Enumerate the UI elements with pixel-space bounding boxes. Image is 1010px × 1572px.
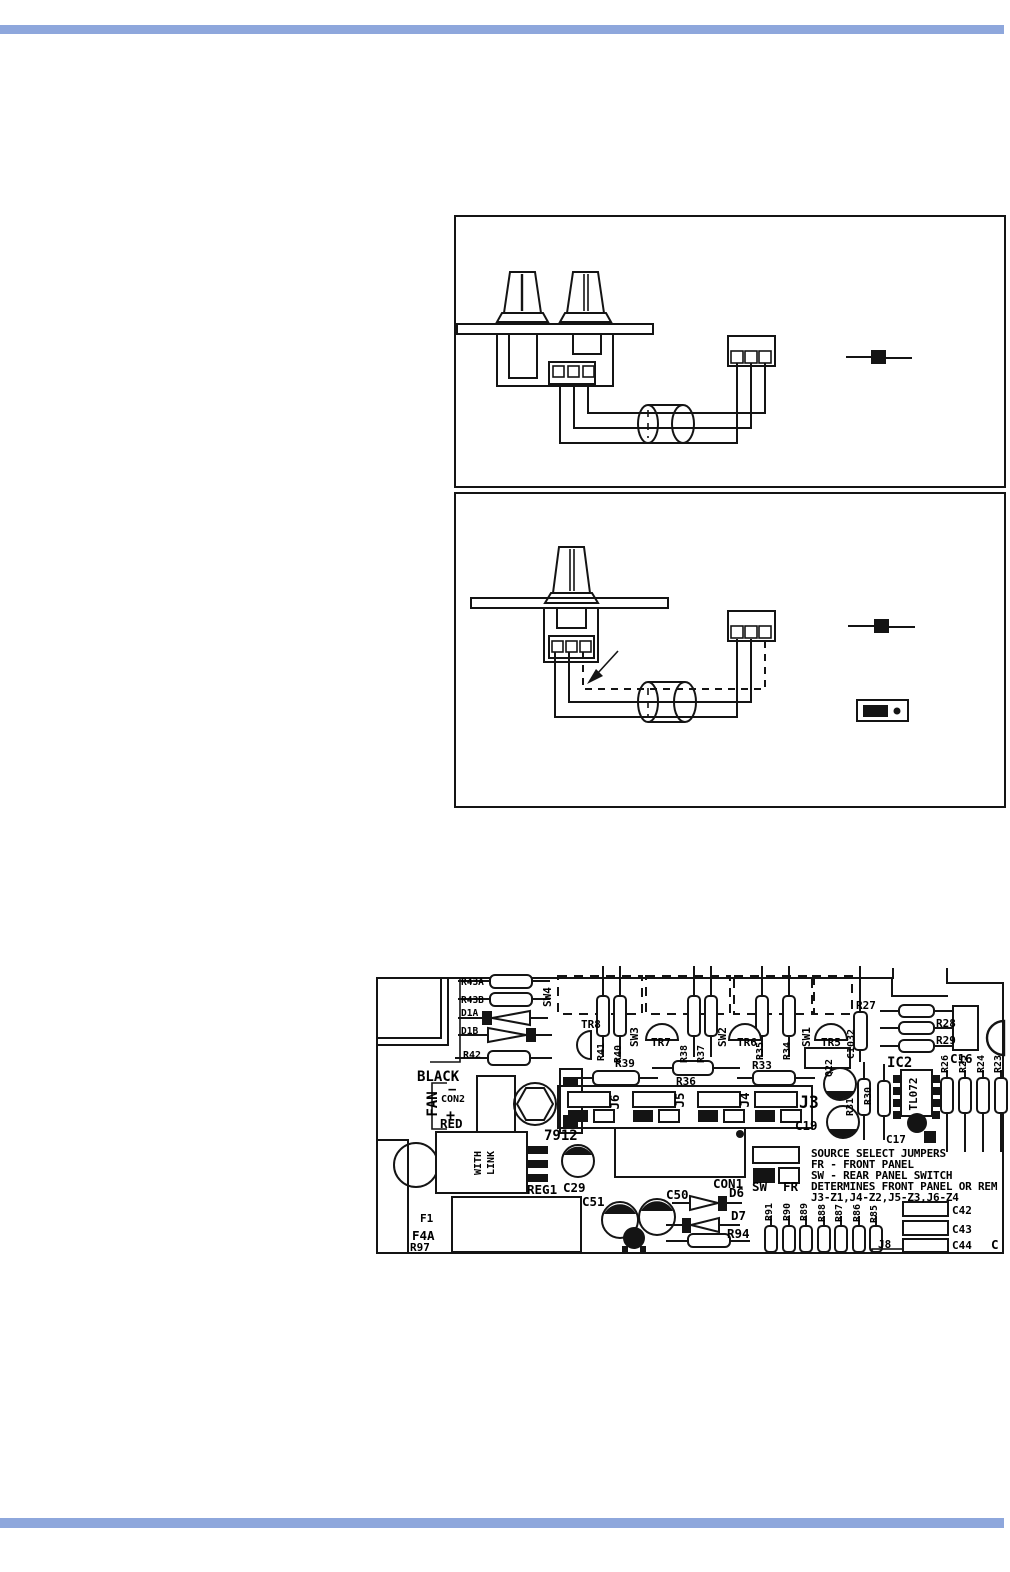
- label-r90: R90: [782, 1203, 793, 1221]
- label-sw4: SW4: [541, 987, 554, 1007]
- label-f1: F1: [420, 1212, 434, 1225]
- label-r86: R86: [852, 1204, 863, 1222]
- figure-pcb-layout: R43A R43B D1A D1B R42 BLACK − CON2 + RED…: [377, 966, 1007, 1254]
- bottom-rule-bar: [0, 1518, 1004, 1528]
- label-c-corner: C: [991, 1237, 999, 1252]
- label-sw-jumper: SW: [752, 1179, 768, 1194]
- resistor-r30: [878, 1064, 890, 1140]
- con1-connector: [615, 1128, 745, 1177]
- label-tr8: TR8: [581, 1018, 601, 1031]
- label-d6: D6: [729, 1185, 744, 1200]
- label-sw1: SW1: [800, 1027, 813, 1047]
- regulator-reg1: [394, 1132, 548, 1193]
- label-red: RED: [440, 1116, 463, 1131]
- label-r43a: R43A: [461, 977, 484, 988]
- label-q22: Q22: [824, 1059, 835, 1077]
- label-with: WITH: [473, 1151, 484, 1175]
- capacitor-c29: [562, 1145, 594, 1177]
- pot-wires: [560, 363, 765, 443]
- label-reg1: REG1: [527, 1182, 557, 1197]
- knob-single: [545, 547, 598, 603]
- source-select-note: SOURCE SELECT JUMPERS FR - FRONT PANEL S…: [811, 1147, 998, 1204]
- label-r29: R29: [936, 1034, 956, 1047]
- label-r36: R36: [676, 1075, 696, 1088]
- label-r30: R30: [863, 1087, 874, 1105]
- sw-fr-jumper-pads: [753, 1147, 799, 1183]
- slide-switch-icon: [857, 700, 908, 721]
- label-c19: C19: [795, 1118, 818, 1133]
- jumper-closed-icon-2: [848, 619, 915, 633]
- label-j6: J6: [607, 1094, 622, 1109]
- label-c51: C51: [582, 1194, 605, 1209]
- label-r42: R42: [463, 1050, 481, 1061]
- label-r34: R34: [782, 1042, 793, 1060]
- label-j5: J5: [672, 1092, 687, 1107]
- note-line-5: J3-Z1,J4-Z2,J5-Z3,J6-Z4: [811, 1191, 959, 1204]
- label-r25: R25: [958, 1055, 969, 1073]
- figure-knob-wiring: [455, 216, 1005, 807]
- label-d1a: D1A: [461, 1008, 478, 1019]
- transistor-right-edge: [987, 1021, 1004, 1055]
- label-fan: FAN: [425, 1091, 441, 1116]
- pcb-header-3pin: [728, 336, 775, 366]
- label-r94: R94: [727, 1226, 750, 1241]
- label-j4: J4: [737, 1092, 752, 1107]
- label-r41: R41: [596, 1043, 607, 1061]
- transformer-corner: [377, 978, 448, 1045]
- wiring-panel-bottom: [455, 493, 1005, 807]
- resistor-r39: [572, 1071, 658, 1085]
- transistor-tr8: [577, 1031, 591, 1059]
- label-tr5: TR5: [821, 1036, 841, 1049]
- label-sw2: SW2: [716, 1027, 729, 1047]
- manual-page: R43A R43B D1A D1B R42 BLACK − CON2 + RED…: [0, 0, 1010, 1572]
- knob-left: [497, 272, 548, 322]
- label-r27: R27: [856, 999, 876, 1012]
- resistors-r23-r26: [941, 1070, 1007, 1152]
- label-r24: R24: [976, 1055, 987, 1073]
- label-sw3: SW3: [628, 1027, 641, 1047]
- label-7912: 7912: [544, 1128, 578, 1144]
- label-j8: J8: [878, 1238, 891, 1251]
- label-d1b: D1B: [461, 1026, 478, 1037]
- top-rule-bar: [0, 25, 1004, 34]
- label-r28: R28: [936, 1017, 956, 1030]
- label-tl072: TL072: [907, 1077, 920, 1110]
- label-r31: R31: [845, 1098, 856, 1116]
- pot-body-assembly: [497, 334, 613, 386]
- label-r87: R87: [834, 1204, 845, 1222]
- pcb-outline-step: [892, 978, 948, 996]
- transistor-bottom: [622, 1227, 646, 1253]
- area-divider: [430, 978, 460, 1062]
- wiring-panel-top: [455, 216, 1005, 487]
- pcb-outline-notch: [377, 1140, 408, 1253]
- knob-right: [560, 272, 611, 322]
- page-graphics: R43A R43B D1A D1B R42 BLACK − CON2 + RED…: [0, 0, 1010, 1572]
- label-r39: R39: [615, 1057, 635, 1070]
- capacitors-c42-c44: [903, 1202, 948, 1252]
- label-r88: R88: [817, 1204, 828, 1222]
- label-c42: C42: [952, 1204, 972, 1217]
- label-c44: C44: [952, 1239, 972, 1252]
- label-r35: R35: [755, 1042, 766, 1060]
- label-c50: C50: [666, 1187, 689, 1202]
- label-r38: R38: [679, 1045, 690, 1063]
- label-con2: CON2: [441, 1094, 465, 1105]
- label-c17: C17: [886, 1133, 906, 1146]
- label-r23: R23: [993, 1055, 1004, 1073]
- label-r26: R26: [940, 1055, 951, 1073]
- pot-body-assembly-2: [544, 608, 598, 662]
- label-r37: R37: [696, 1045, 707, 1063]
- front-panel-bar: [457, 324, 653, 334]
- mounting-nut: [514, 1083, 556, 1125]
- label-fr-jumper: FR: [783, 1179, 799, 1194]
- capacitor-c17: [907, 1113, 936, 1143]
- con2-connector: [477, 1076, 515, 1133]
- label-j3: J3: [799, 1093, 819, 1112]
- label-c1032: C1032: [846, 1029, 857, 1059]
- label-ic2: IC2: [887, 1055, 912, 1071]
- label-r97: R97: [410, 1241, 430, 1254]
- fuse-f1: [452, 1197, 581, 1252]
- pcb-header-3pin-2: [728, 611, 775, 641]
- label-c43: C43: [952, 1223, 972, 1236]
- label-d7: D7: [731, 1208, 746, 1223]
- capacitor-c16: [953, 1006, 978, 1050]
- jumper-closed-icon: [846, 350, 912, 364]
- label-r33: R33: [752, 1059, 772, 1072]
- resistor-r33: [737, 1071, 815, 1085]
- label-r85: R85: [869, 1205, 880, 1223]
- callout-arrow: [587, 651, 618, 684]
- capacitor-c50: [639, 1199, 675, 1235]
- label-tr7: TR7: [651, 1036, 671, 1049]
- label-r89: R89: [799, 1203, 810, 1221]
- panel-b-border: [455, 493, 1005, 807]
- ferrite-sleeve: [638, 405, 694, 443]
- label-r91: R91: [764, 1203, 775, 1221]
- label-r43b: R43B: [461, 995, 484, 1006]
- label-c29: C29: [563, 1180, 586, 1195]
- label-link: LINK: [486, 1151, 497, 1175]
- pot-wires-2: [555, 639, 765, 717]
